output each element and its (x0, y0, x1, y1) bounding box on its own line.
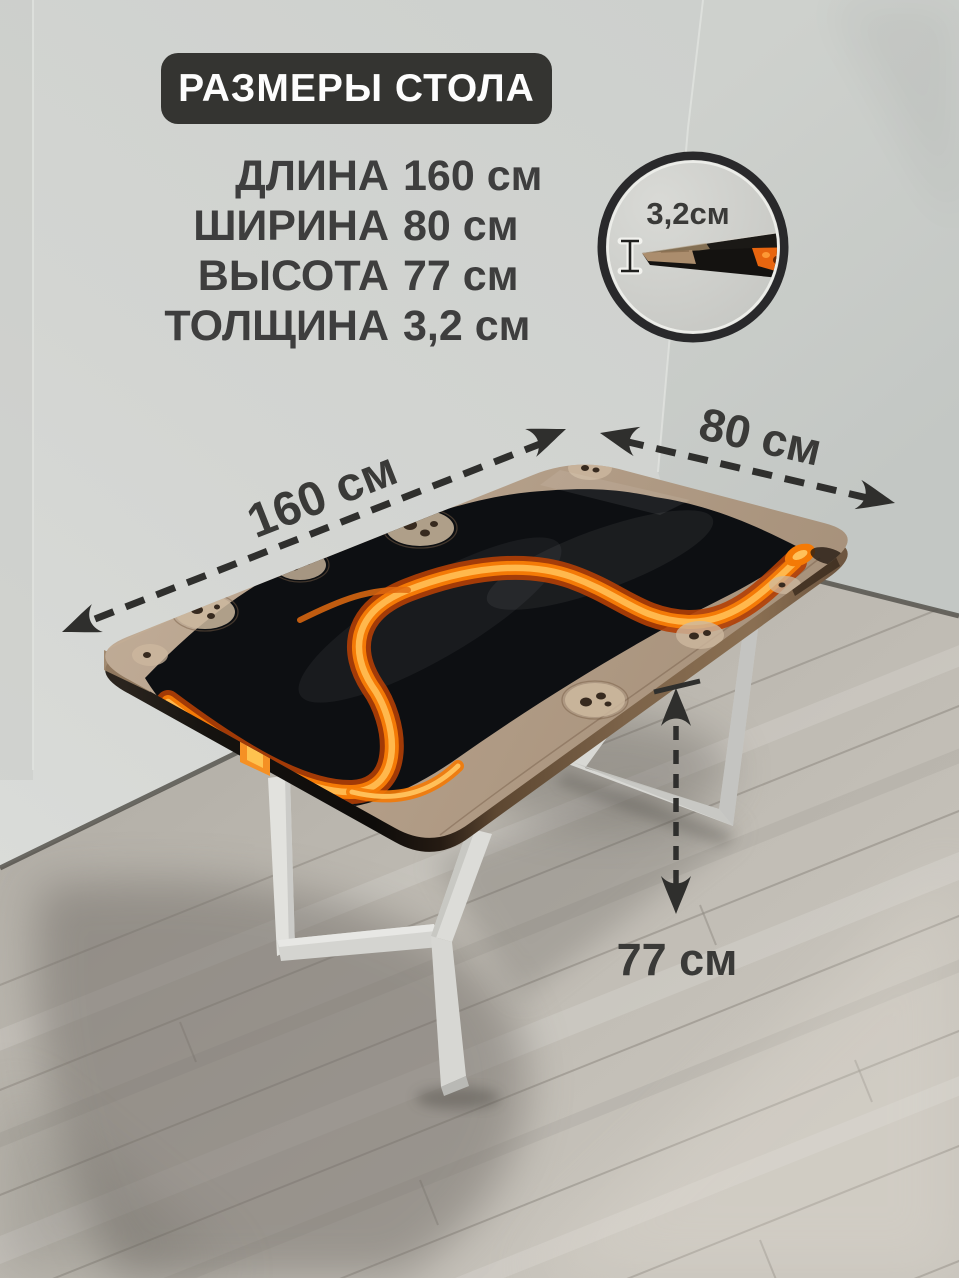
spec-label: ДЛИНА (0, 151, 389, 201)
title-badge: РАЗМЕРЫ СТОЛА (161, 53, 552, 124)
product-photo-card: 160 см 80 см 77 см (0, 0, 959, 1278)
wall-panel-edge (0, 0, 33, 780)
spec-value: 80 см (403, 201, 519, 251)
spec-row-length: ДЛИНА 160 см (0, 151, 560, 201)
page-title: РАЗМЕРЫ СТОЛА (178, 67, 535, 111)
height-label: 77 см (617, 934, 738, 985)
spec-label: ТОЛЩИНА (0, 301, 389, 351)
inset-thickness-label: 3,2см (646, 196, 729, 231)
spec-label: ШИРИНА (0, 201, 389, 251)
spec-value: 160 см (403, 151, 542, 201)
spec-label: ВЫСОТА (0, 251, 389, 301)
spec-row-height: ВЫСОТА 77 см (0, 251, 560, 301)
spec-row-width: ШИРИНА 80 см (0, 201, 560, 251)
spec-value: 3,2 см (403, 301, 530, 351)
spec-row-thickness: ТОЛЩИНА 3,2 см (0, 301, 560, 351)
spec-value: 77 см (403, 251, 519, 301)
spec-list: ДЛИНА 160 см ШИРИНА 80 см ВЫСОТА 77 см Т… (0, 151, 560, 351)
